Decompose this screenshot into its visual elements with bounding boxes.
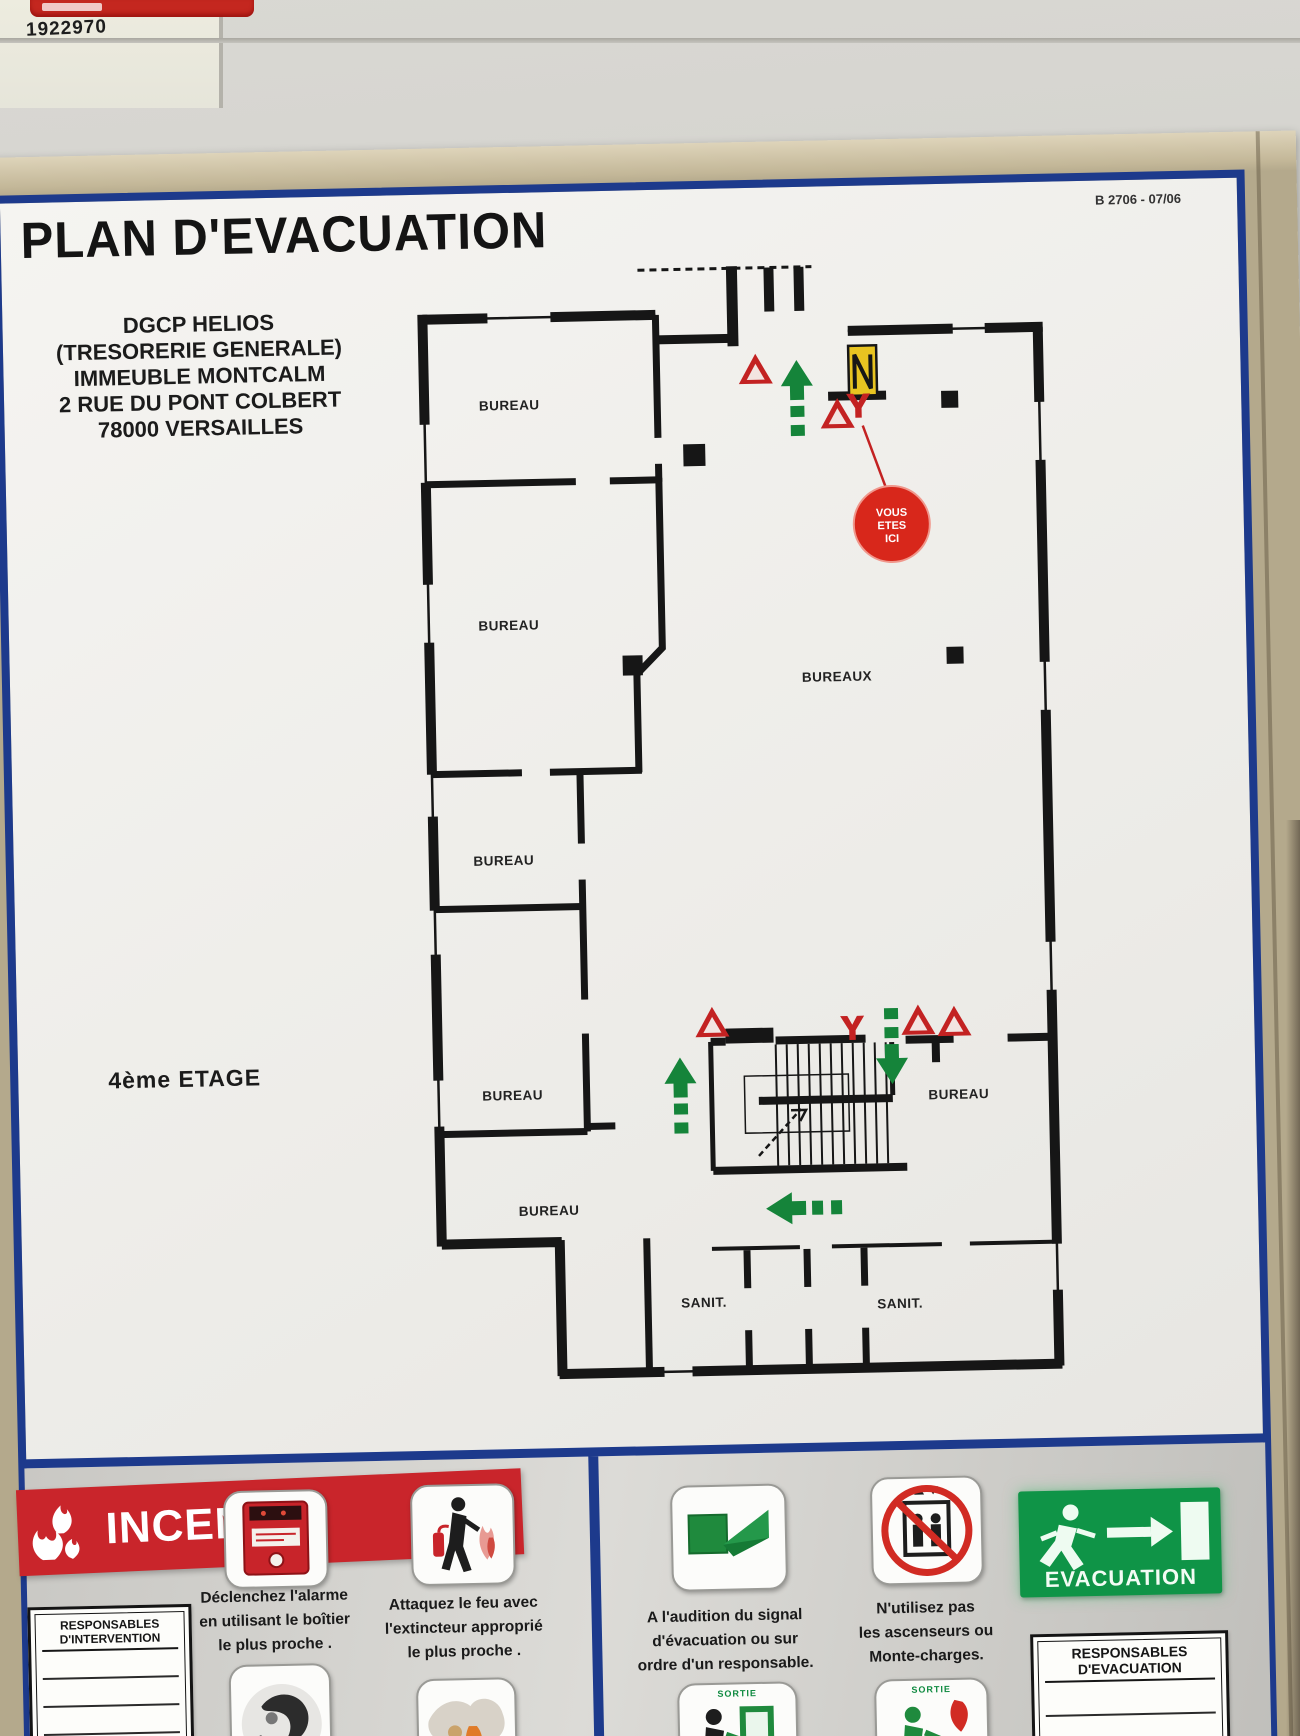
warning-triangle-icon <box>901 1004 936 1035</box>
evacuation-label: EVACUATION <box>1045 1564 1198 1592</box>
no-elevator-instruction: N'utilisez pas les ascenseurs ou Monte-c… <box>830 1595 1021 1671</box>
svg-text:VOUS: VOUS <box>876 507 907 520</box>
evacuation-arrow-up-icon <box>780 360 814 437</box>
exit-arrow-icon <box>1107 1516 1174 1547</box>
responsables-evacuation-box: RESPONSABLES D'EVACUATION <box>1030 1630 1233 1736</box>
room-label: SANIT. <box>681 1295 727 1311</box>
room-label: BUREAU <box>482 1087 543 1103</box>
stairwell <box>710 1022 1058 1171</box>
no-elevator-icon <box>870 1475 984 1585</box>
aluminum-frame: PLAN D'EVACUATION B 2706 - 07/06 DGCP HE… <box>0 130 1300 1736</box>
room-label: BUREAU <box>479 397 540 413</box>
svg-text:ICI: ICI <box>885 533 899 545</box>
wall-seam <box>0 38 1300 43</box>
running-man-icon <box>1038 1504 1095 1571</box>
building-address: DGCP HELIOS (TRESORERIE GENERALE) IMMEUB… <box>30 308 369 445</box>
responsables-intervention-box: RESPONSABLES D'INTERVENTION <box>27 1604 197 1736</box>
sortie-icon: SORTIE <box>874 1677 991 1736</box>
extinguisher-instruction: Attaquez le feu avec l'extincteur approp… <box>377 1590 550 1666</box>
room-label: BUREAU <box>478 617 539 633</box>
room-label: BUREAU <box>519 1203 580 1219</box>
instruction-panel: INCENDIE RESPONSABLES D'INTERVENTION <box>24 1433 1275 1736</box>
red-sticker <box>30 0 254 17</box>
fire-alarm-icon <box>223 1489 329 1589</box>
floor-plan: VOUS ETES ICI BUREAU BUREAU BUREAUX BURE… <box>391 239 1185 1405</box>
signal-instruction: A l'audition du signal d'évacuation ou s… <box>627 1603 822 1679</box>
document-reference: B 2706 - 07/06 <box>1095 191 1181 208</box>
room-label: SANIT. <box>877 1296 923 1312</box>
evacuation-arrow-left-icon <box>766 1191 843 1225</box>
alarm-instruction: Déclenchez l'alarme en utilisant le boît… <box>188 1583 361 1659</box>
elevator-icon <box>848 345 877 396</box>
room-label: BUREAU <box>473 853 534 869</box>
floor-label: 4ème ETAGE <box>108 1064 261 1094</box>
room-label: BUREAU <box>928 1086 989 1102</box>
warning-triangle-icon <box>738 353 773 384</box>
flame-icon <box>26 1498 93 1565</box>
warning-triangle-icon <box>937 1005 972 1036</box>
wall-shadow-edge <box>1286 820 1300 1736</box>
panel-divider <box>588 1456 608 1736</box>
alert-picture-icon <box>229 1663 334 1736</box>
evacuation-poster: PLAN D'EVACUATION B 2706 - 07/06 DGCP HE… <box>0 170 1281 1736</box>
stair-door <box>725 1028 773 1044</box>
evacuation-sign: EVACUATION <box>1018 1487 1222 1597</box>
evacuation-arrow-up-icon <box>664 1057 698 1134</box>
evacuation-signal-icon <box>670 1483 788 1591</box>
exit-door-icon <box>1180 1502 1209 1561</box>
you-are-here-badge: VOUS ETES ICI <box>852 424 931 563</box>
room-label: BUREAUX <box>802 668 873 684</box>
photo-of-evacuation-plan: 1922970 PLAN D'EVACUATION B 2706 - 07/06… <box>0 0 1300 1736</box>
evacuation-arrow-down-icon <box>875 1008 909 1085</box>
sortie-icon: SORTIE <box>677 1681 800 1736</box>
serial-number: 1922970 <box>26 16 108 42</box>
firefighting-picture-icon <box>416 1677 518 1736</box>
svg-text:ETES: ETES <box>877 520 906 533</box>
warning-triangle-icon <box>695 1007 730 1038</box>
warning-triangle-icon <box>820 398 855 429</box>
extinguisher-icon <box>410 1483 516 1586</box>
